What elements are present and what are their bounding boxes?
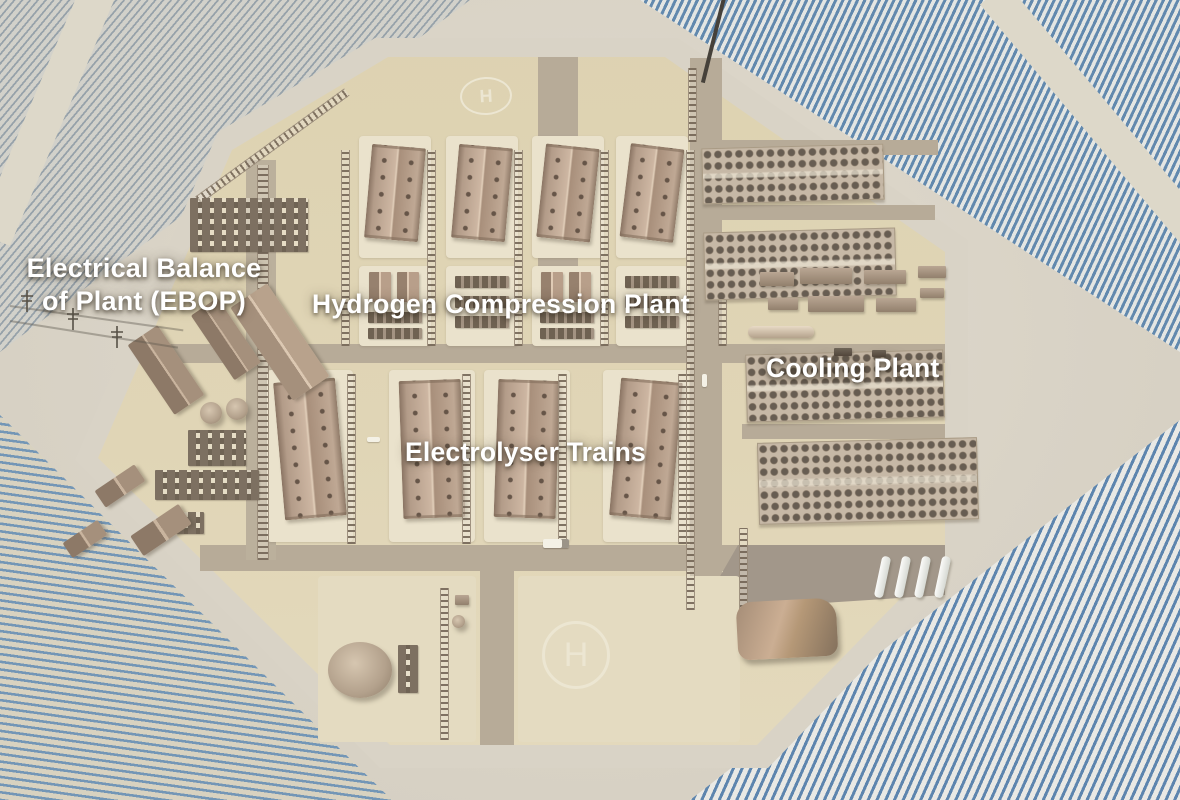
road-marking <box>367 437 380 442</box>
utility-building <box>760 272 794 286</box>
pipe-rack <box>739 528 748 613</box>
road-marking <box>702 374 707 387</box>
utility-building <box>808 296 864 312</box>
storage-tank-large <box>328 642 392 698</box>
pipe-rack <box>347 374 356 544</box>
road-cooling-mid <box>700 205 935 220</box>
compressor-skid <box>625 276 679 288</box>
road-cooling-south <box>742 424 945 439</box>
solar-field-access-road <box>0 0 119 246</box>
label-ebop: Electrical Balance of Plant (EBOP) <box>8 252 280 318</box>
electrolyser-building <box>619 143 684 243</box>
electrolyser-building <box>273 378 347 521</box>
storage-tank-small <box>226 398 248 420</box>
equipment-column <box>398 645 418 693</box>
compressor-skid <box>368 328 422 339</box>
cooling-fan-bank <box>703 227 897 300</box>
utility-building <box>768 298 798 310</box>
solar-field-access-road <box>980 0 1180 257</box>
pipe-rack <box>686 150 695 610</box>
warehouse-quonset <box>736 597 839 660</box>
pipe-rack <box>688 68 697 142</box>
transformer-yard <box>190 198 308 252</box>
label-ebop-line1: Electrical Balance <box>8 252 280 285</box>
cooling-fan-bank <box>701 144 884 205</box>
label-hydrogen-compression: Hydrogen Compression Plant <box>312 289 684 320</box>
transformer-row <box>155 470 259 500</box>
label-ebop-line2: of Plant (EBOP) <box>8 285 280 318</box>
storage-tank-small <box>200 402 222 424</box>
electrolyser-building <box>536 143 600 242</box>
label-cooling-plant: Cooling Plant <box>766 353 934 384</box>
utility-building <box>876 298 916 312</box>
helipad-letter: H <box>564 636 589 675</box>
delivery-truck <box>543 539 569 548</box>
plant-aerial-render: H H Electrical Balance of Plant (EBOP) H… <box>0 0 1180 800</box>
road-vertical-south <box>480 558 514 745</box>
horizontal-storage-tank <box>748 326 814 338</box>
utility-building <box>920 288 944 298</box>
equipment-block <box>455 595 469 605</box>
helipad-letter: H <box>479 85 493 107</box>
label-electrolyser-trains: Electrolyser Trains <box>405 437 643 468</box>
pipe-rack <box>440 588 449 740</box>
compressor-skid <box>455 276 509 288</box>
transmission-pylon-icon <box>108 326 126 348</box>
utility-building <box>800 268 852 284</box>
compressor-skid <box>540 328 594 339</box>
helipad-south: H <box>542 621 610 689</box>
electrolyser-building <box>451 144 513 242</box>
electrolyser-building <box>364 144 426 242</box>
storage-tank-small <box>452 615 465 628</box>
utility-building <box>864 270 906 284</box>
cooling-fan-bank <box>757 437 979 525</box>
switchgear-skid <box>188 430 246 466</box>
utility-building <box>918 266 946 278</box>
